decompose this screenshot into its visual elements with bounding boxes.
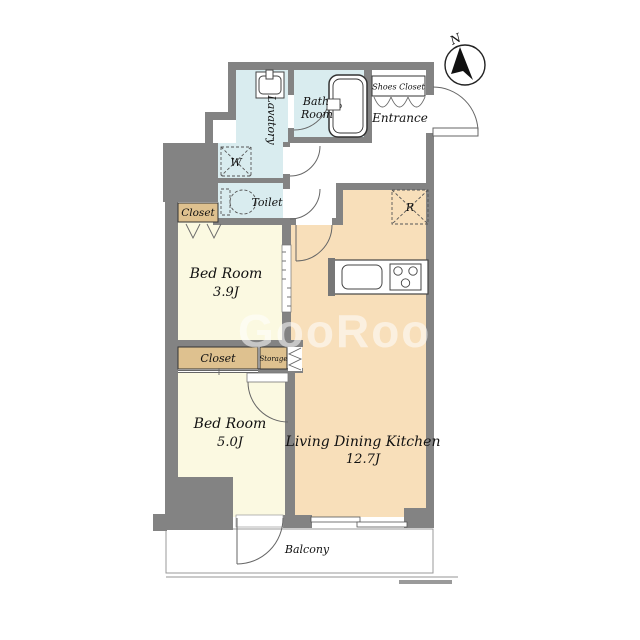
shoes-closet-label: Shoes Closet — [372, 83, 425, 92]
washroom-door-arc — [290, 146, 320, 176]
entrance-door-leaf — [433, 128, 478, 136]
bath-label-1: Bath — [302, 95, 329, 108]
ldk-name: Living Dining Kitchen — [285, 434, 441, 450]
ldk-size: 12.7J — [346, 452, 381, 467]
bedroom1-name: Bed Room — [189, 266, 263, 282]
bedroom2-size: 5.0J — [217, 435, 244, 450]
entrance-label: Entrance — [371, 111, 428, 125]
counter-end-panel — [328, 258, 335, 296]
folding-door-icon — [374, 97, 425, 107]
balcony-window — [311, 517, 407, 527]
bathtub-icon — [327, 75, 367, 137]
bath-label-2: Room — [300, 108, 333, 121]
bedroom1-size: 3.9J — [213, 285, 240, 300]
balcony — [166, 529, 458, 584]
sliding-partition — [282, 245, 291, 312]
floor-plan: Closet Closet Storage W — [0, 0, 640, 640]
entrance-door-arc — [433, 87, 478, 132]
toilet-door-arc — [290, 189, 320, 219]
bedroom2-name: Bed Room — [193, 416, 267, 432]
refrigerator-label: R — [405, 201, 414, 214]
watermark: GooRooM — [238, 305, 472, 357]
closet-top-label: Closet — [181, 207, 215, 219]
kitchen-sink-icon — [342, 265, 382, 289]
toilet-label: Toilet — [251, 196, 283, 209]
balcony-label: Balcony — [284, 543, 330, 556]
shoes-closet: Shoes Closet — [372, 76, 425, 107]
kitchen-counter — [328, 258, 428, 296]
outer-edge-bar — [399, 580, 452, 584]
stove-icon — [390, 264, 421, 290]
sink-icon — [256, 70, 284, 98]
north-arrow-icon: N — [445, 30, 485, 85]
closet-mid-label: Closet — [200, 352, 236, 365]
lavatory-label: Lavatory — [265, 94, 278, 145]
washer-label: W — [230, 156, 243, 169]
